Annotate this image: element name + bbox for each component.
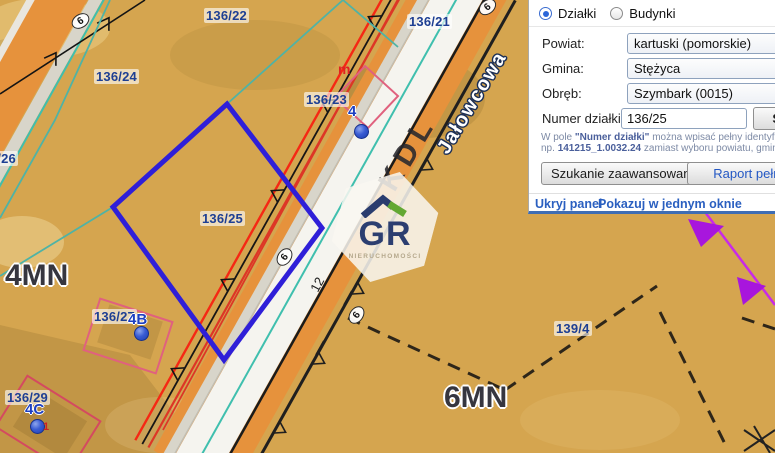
powiat-label: Powiat: — [542, 36, 585, 51]
watermark-subtitle: NIERUCHOMOŚCI — [349, 253, 422, 260]
parcel-label: 136/21 — [407, 14, 452, 29]
radio-dzialki-label: Działki — [558, 6, 596, 21]
zone-label: 4MN — [5, 261, 68, 291]
search-button[interactable]: Szukaj — [753, 107, 775, 130]
parcel-label: 136/22 — [204, 8, 249, 23]
address-number-label: 4B — [128, 312, 147, 327]
app-window: KDL Jałowcowa 136/22136/21136/24136/2313… — [0, 0, 775, 453]
radio-dzialki[interactable] — [539, 7, 552, 20]
address-number-label: 4C — [25, 402, 44, 417]
powiat-select[interactable]: kartuski (pomorskie) — [627, 33, 775, 54]
obreb-select[interactable]: Szymbark (0015) — [627, 83, 775, 104]
obreb-label: Obręb: — [542, 86, 582, 101]
radio-budynki-label: Budynki — [629, 6, 675, 21]
gmina-select[interactable]: Stężyca — [627, 58, 775, 79]
layer-radio-row: DziałkiBudynki — [539, 6, 690, 21]
panel-divider — [529, 26, 775, 27]
address-point-marker[interactable] — [134, 326, 149, 341]
parcel-number-label: Numer działki: — [542, 111, 624, 126]
advanced-search-button[interactable]: Szukanie zaawansowane — [541, 162, 708, 185]
star-symbol — [744, 426, 775, 453]
parcel-label: 136/24 — [94, 69, 139, 84]
full-report-button[interactable]: Raport pełny dl — [687, 162, 775, 185]
parcel-number-input[interactable] — [621, 108, 747, 129]
radio-budynki[interactable] — [610, 7, 623, 20]
watermark-initials: GR — [359, 218, 412, 250]
map-annotation: m — [338, 62, 350, 76]
single-window-link[interactable]: Pokazuj w jednym oknie — [598, 197, 742, 211]
parcel-label: 136/26 — [0, 151, 18, 166]
parcel-label: 136/25 — [200, 211, 245, 226]
help-line-2: np. 141215_1.0032.24 zamiast wyboru powi… — [541, 144, 775, 155]
links-divider — [529, 193, 775, 194]
address-number-label: 4 — [348, 104, 356, 119]
purple-boundary — [688, 212, 775, 305]
parcel-label: 136/23 — [304, 92, 349, 107]
address-point-marker[interactable] — [354, 124, 369, 139]
map-annotation: 1 — [43, 422, 49, 433]
hide-panel-link[interactable]: Ukryj panel — [535, 197, 602, 211]
zone-label: 6MN — [444, 383, 507, 413]
parcel-label: 139/4 — [554, 321, 592, 336]
gmina-label: Gmina: — [542, 61, 584, 76]
help-line-1: W pole "Numer działki" można wpisać pełn… — [541, 133, 775, 144]
search-panel: DziałkiBudynki Powiat: kartuski (pomorsk… — [528, 0, 775, 214]
